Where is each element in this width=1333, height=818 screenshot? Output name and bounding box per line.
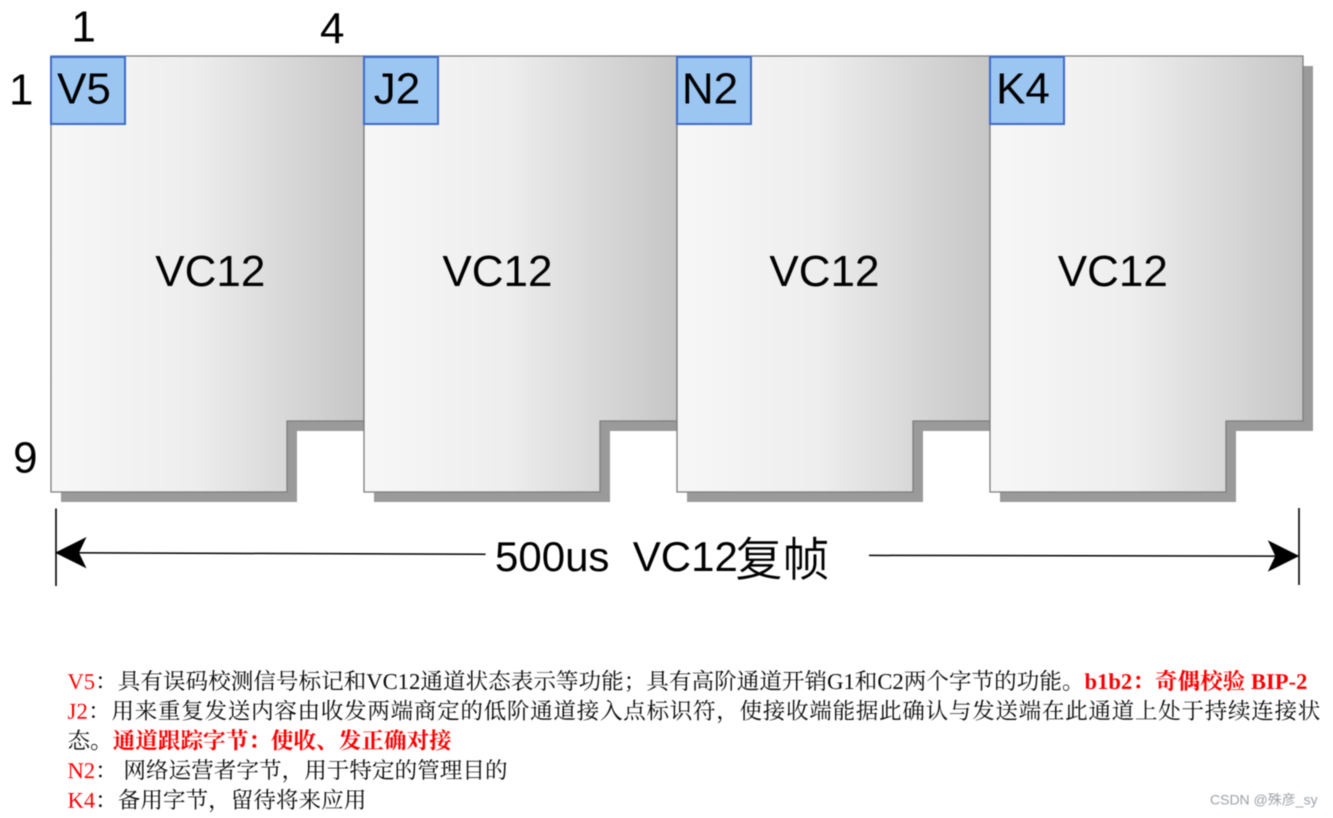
- svg-text:1: 1: [71, 3, 95, 52]
- svg-text:VC12: VC12: [769, 247, 879, 296]
- svg-text:9: 9: [13, 434, 37, 483]
- svg-text:VC12: VC12: [442, 247, 552, 296]
- svg-text:4: 4: [320, 5, 344, 54]
- svg-text:VC12: VC12: [155, 247, 265, 296]
- svg-text:CSDN @: CSDN @: [1210, 792, 1268, 808]
- svg-text:J2: J2: [374, 65, 420, 114]
- svg-text:N2: N2: [682, 65, 738, 114]
- svg-text:VC12: VC12: [1058, 247, 1168, 296]
- svg-text:1: 1: [9, 66, 33, 115]
- svg-text:500us VC12: 500us VC12: [495, 533, 738, 580]
- svg-text:K4: K4: [996, 65, 1050, 114]
- svg-text:_sy: _sy: [1295, 792, 1318, 808]
- svg-text:V5: V5: [57, 65, 111, 114]
